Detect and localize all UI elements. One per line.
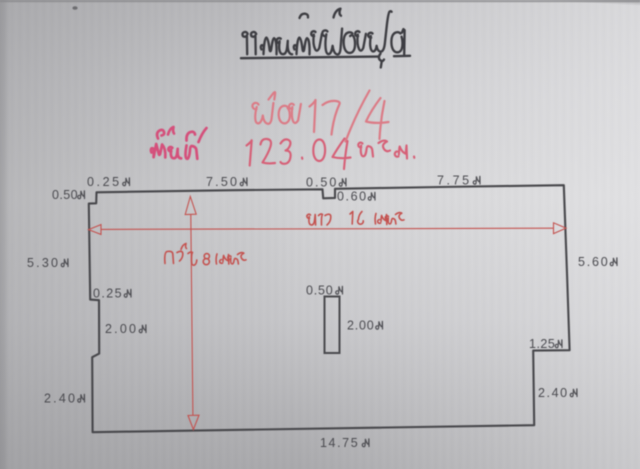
svg-text:0.50: 0.50 — [306, 284, 334, 298]
svg-text:2.40: 2.40 — [538, 386, 569, 400]
svg-text:7.75: 7.75 — [437, 174, 472, 188]
svg-text:5.60: 5.60 — [578, 255, 610, 269]
svg-text:5.30: 5.30 — [27, 256, 60, 270]
svg-text:0.50: 0.50 — [306, 176, 338, 190]
svg-text:14.75: 14.75 — [320, 436, 359, 450]
svg-text:2.40: 2.40 — [44, 392, 77, 406]
svg-text:1.25: 1.25 — [529, 337, 555, 351]
svg-text:0.60: 0.60 — [337, 190, 368, 204]
svg-text:2.00: 2.00 — [105, 322, 138, 336]
svg-text:2.00: 2.00 — [347, 319, 375, 333]
svg-text:0.25: 0.25 — [93, 287, 123, 301]
svg-text:7.50: 7.50 — [206, 175, 239, 189]
svg-text:0.50: 0.50 — [52, 188, 78, 202]
svg-text:0.25: 0.25 — [87, 175, 122, 189]
